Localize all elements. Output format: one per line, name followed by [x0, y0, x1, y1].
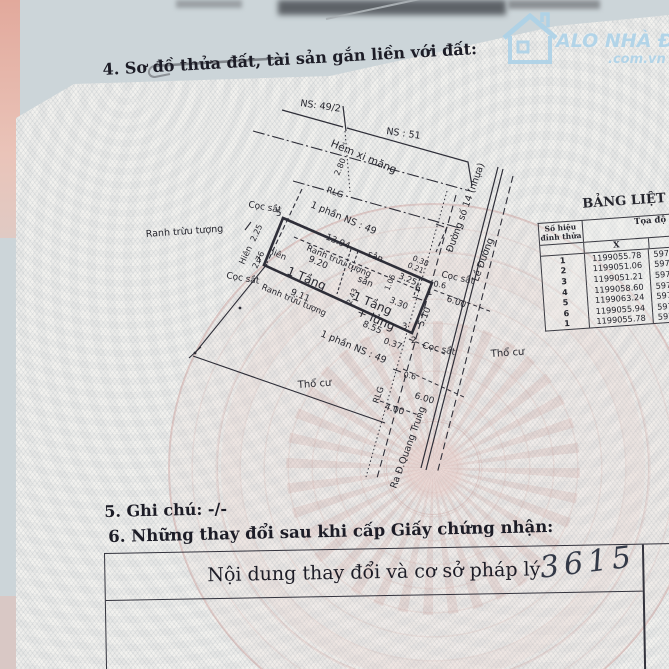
- dim-5-10: 5.10: [417, 306, 434, 329]
- photo-of-land-certificate: 4. Sơ đồ thửa đất, tài sản gắn liền với …: [0, 0, 669, 669]
- vertex-1: 1: [427, 288, 432, 298]
- label-ns-49-2: NS: 49/2: [300, 98, 342, 115]
- house-icon: [498, 8, 562, 68]
- coordinate-table: BẢNG LIỆT KÊ Số hiệu đỉnh thửa Tọa độ X …: [536, 186, 669, 332]
- vertex-4: 4: [256, 256, 261, 266]
- vertex-2: 2: [411, 336, 416, 346]
- label-street-14: Đường số 14 (nhựa): [444, 162, 487, 255]
- changes-table-divider: [642, 545, 646, 669]
- dim-0-6-top: 0.6: [433, 279, 447, 290]
- dim-6-00-bottom: 6.00: [413, 391, 435, 407]
- dim-2-25: 2.25: [249, 223, 265, 243]
- coordinate-table-grid: Số hiệu đỉnh thửa Tọa độ X 11199055.7859…: [538, 210, 669, 331]
- label-san-mid: sân: [356, 275, 375, 290]
- watermark-site-name: ALO NHÀ ĐẤT: [556, 30, 669, 52]
- vertex-6: 6: [415, 284, 420, 294]
- label-coc-sat-br: Cọc sắt: [421, 340, 456, 358]
- label-tho-cu-left: Thổ cư: [296, 376, 332, 391]
- label-rlg-top: RLG: [325, 185, 345, 200]
- label-coc-sat-bl: Cọc sắt: [225, 270, 260, 287]
- dim-2-80: 2.80: [333, 157, 348, 177]
- vertex-3: 3: [402, 322, 407, 332]
- label-ranh-left: Ranh trừu tượng: [145, 224, 223, 240]
- watermark-site-domain: .com.vn: [608, 52, 666, 67]
- section5-title: 5. Ghi chú: -/-: [104, 499, 227, 521]
- dim-4-00-bottom: 4.00: [383, 402, 405, 418]
- label-ns-51: NS : 51: [386, 126, 422, 142]
- vertex-5: 5: [276, 209, 281, 219]
- label-san-top: sân: [366, 250, 385, 265]
- col-header-vertex: Số hiệu đỉnh thửa: [539, 221, 584, 245]
- label-rlg-bottom: RLG: [371, 385, 386, 405]
- label-hien-top: hiên: [267, 246, 288, 263]
- coord-cell: 1: [545, 317, 589, 331]
- dim-0-37: 0.37: [382, 336, 403, 352]
- col-header-vertex-line2: đỉnh thửa: [540, 231, 581, 243]
- label-to-quang-trung: Ra Đ.Quang Trung: [388, 405, 428, 490]
- label-part-ns49-top: 1 phần NS : 49: [309, 200, 378, 238]
- dim-13-94: 13.94: [324, 233, 352, 252]
- label-tho-cu-right: Thổ cư: [489, 345, 525, 360]
- dim-6-00-top: 6.00: [445, 294, 468, 310]
- coordinate-rows: 11199055.7859721199051.0659731199051.215…: [541, 244, 669, 330]
